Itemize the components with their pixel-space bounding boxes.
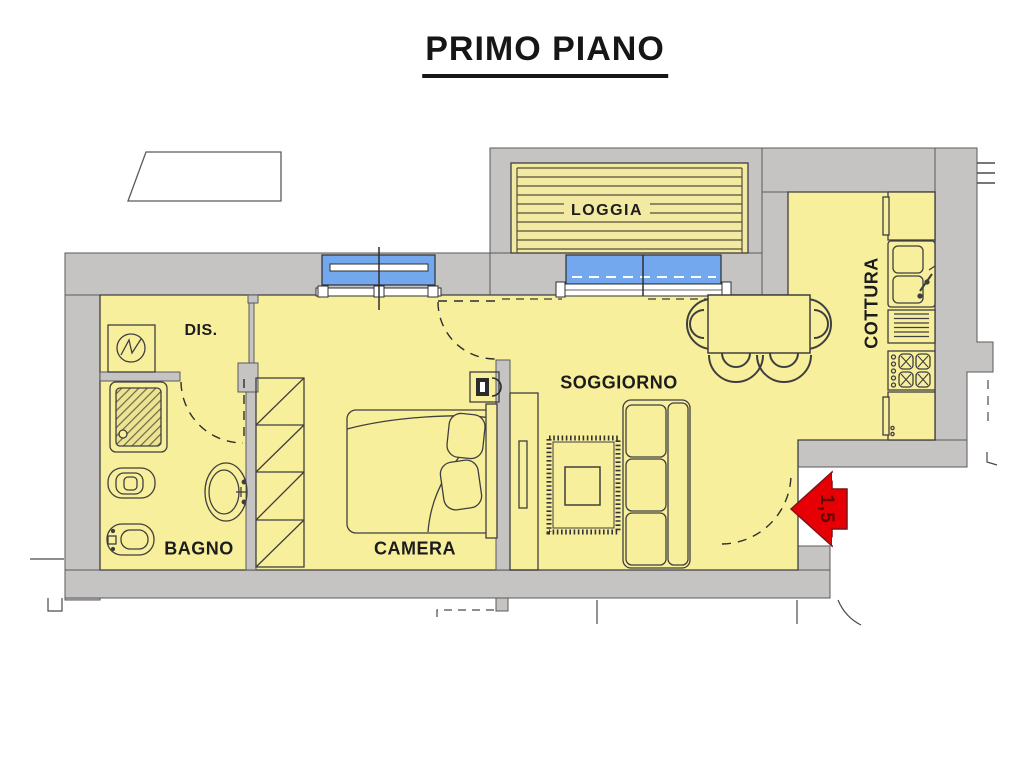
room-label-loggia: LOGGIA <box>564 201 650 221</box>
room-label-cottura: COTTURA <box>862 257 883 349</box>
room-label-dis: DIS. <box>184 322 217 340</box>
room-label-bagno: BAGNO <box>164 539 234 560</box>
kitchen-drawers <box>888 310 935 343</box>
floor-plan-page: PRIMO PIANO LOGGIA DIS. SOGGIORNO COTTUR… <box>0 0 1024 768</box>
dining-table <box>708 295 810 353</box>
floor-plan-drawing <box>0 0 1024 768</box>
neighbor-balcony-outline <box>128 152 281 201</box>
room-label-soggiorno: SOGGIORNO <box>560 373 678 394</box>
kitchen-cabinet <box>888 192 935 240</box>
stove <box>888 351 935 390</box>
kitchen-cabinet-2 <box>888 392 935 440</box>
kitchen-counter <box>883 192 935 440</box>
shower <box>110 382 167 452</box>
kitchen-sink <box>888 241 935 307</box>
room-label-camera: CAMERA <box>374 539 456 560</box>
page-title: PRIMO PIANO <box>422 30 668 78</box>
entrance-width-label: 1,5 <box>815 494 837 523</box>
